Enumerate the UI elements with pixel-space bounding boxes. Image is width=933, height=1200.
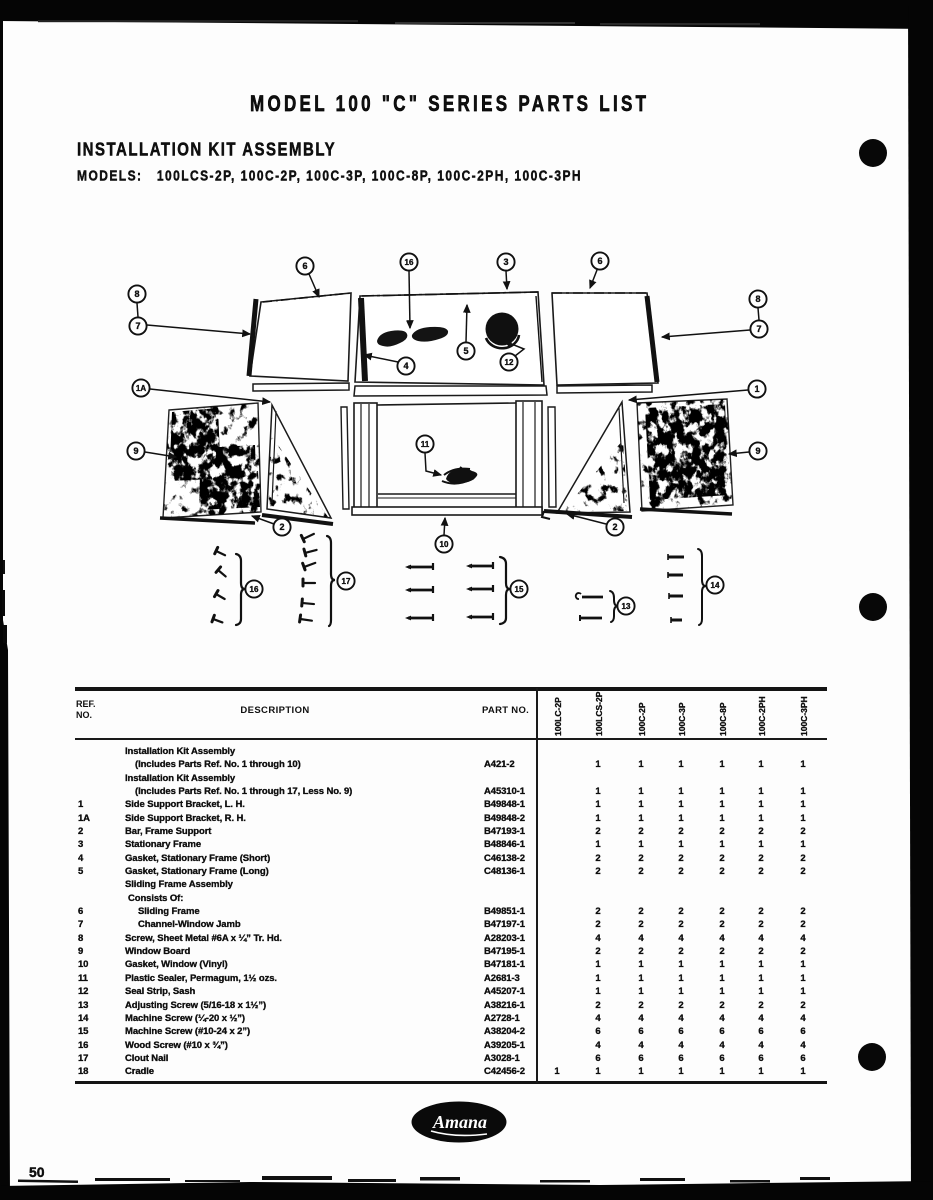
svg-text:9: 9 (133, 446, 138, 456)
svg-text:6: 6 (597, 256, 602, 266)
svg-text:5: 5 (463, 346, 468, 356)
svg-text:11: 11 (421, 440, 430, 449)
svg-text:6: 6 (302, 261, 307, 271)
svg-text:15: 15 (515, 585, 524, 594)
svg-text:1A: 1A (136, 384, 146, 393)
svg-text:16: 16 (250, 585, 259, 594)
svg-text:4: 4 (403, 361, 408, 371)
svg-text:7: 7 (135, 321, 140, 331)
svg-text:Amana: Amana (432, 1112, 487, 1132)
svg-text:1: 1 (754, 384, 759, 394)
svg-text:10: 10 (440, 540, 449, 549)
svg-text:2: 2 (612, 522, 617, 532)
svg-text:9: 9 (755, 446, 760, 456)
svg-text:8: 8 (134, 289, 139, 299)
svg-text:8: 8 (755, 294, 760, 304)
svg-text:7: 7 (756, 324, 761, 334)
svg-text:3: 3 (503, 257, 508, 267)
svg-text:14: 14 (711, 581, 720, 590)
svg-text:16: 16 (405, 258, 414, 267)
svg-text:13: 13 (622, 602, 631, 611)
svg-text:2: 2 (279, 522, 284, 532)
svg-text:17: 17 (342, 577, 351, 586)
svg-text:12: 12 (505, 358, 514, 367)
